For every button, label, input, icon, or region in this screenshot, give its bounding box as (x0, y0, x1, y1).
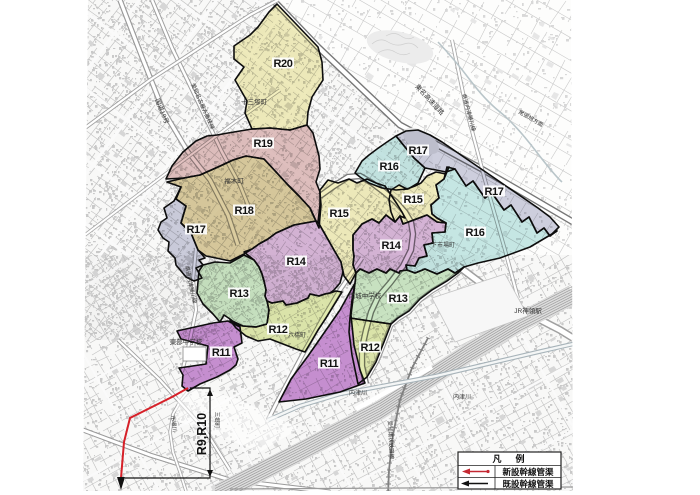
svg-text:R12: R12 (269, 324, 288, 336)
svg-text:内津川: 内津川 (453, 393, 471, 401)
svg-text:既設幹線管渠: 既設幹線管渠 (502, 479, 554, 489)
svg-text:R13: R13 (230, 288, 249, 300)
svg-text:R15: R15 (404, 194, 423, 206)
svg-text:R20: R20 (274, 58, 293, 70)
svg-text:福木町: 福木町 (224, 176, 244, 185)
svg-text:R9,R10: R9,R10 (195, 413, 209, 455)
svg-text:R16: R16 (380, 161, 399, 173)
svg-text:東部中学校: 東部中学校 (170, 337, 203, 346)
svg-text:R17: R17 (485, 186, 504, 198)
svg-text:R14: R14 (287, 256, 307, 268)
svg-text:R11: R11 (212, 347, 231, 359)
svg-text:R18: R18 (235, 205, 254, 217)
svg-text:R14: R14 (382, 240, 402, 252)
svg-text:R19: R19 (254, 138, 273, 150)
svg-text:R17: R17 (187, 224, 206, 236)
svg-text:三郷町: 三郷町 (213, 412, 221, 429)
svg-text:R15: R15 (330, 208, 349, 220)
svg-text:下市場町: 下市場町 (431, 241, 455, 249)
svg-text:例: 例 (515, 453, 524, 464)
svg-text:R12: R12 (361, 342, 380, 354)
svg-text:内津川: 内津川 (349, 389, 367, 397)
svg-text:JR神領駅: JR神領駅 (514, 306, 542, 315)
svg-text:十三塚町: 十三塚町 (241, 97, 268, 106)
svg-text:六橋町: 六橋町 (288, 331, 306, 339)
svg-text:凡: 凡 (491, 454, 501, 464)
svg-text:R13: R13 (389, 293, 408, 305)
svg-text:R11: R11 (320, 358, 339, 370)
svg-text:新設幹線管渠: 新設幹線管渠 (502, 467, 554, 477)
svg-text:R16: R16 (466, 227, 485, 239)
svg-text:南城中学校: 南城中学校 (349, 291, 382, 300)
svg-text:R17: R17 (409, 145, 428, 157)
